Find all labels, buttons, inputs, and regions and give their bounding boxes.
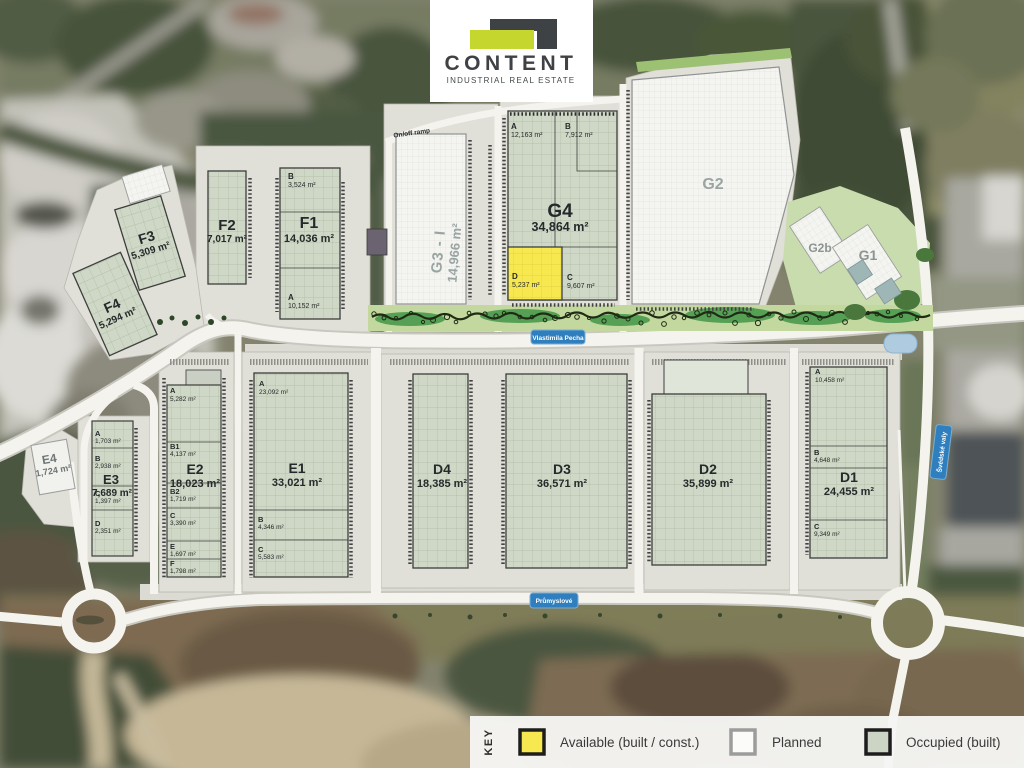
svg-text:18,385 m²: 18,385 m² [417, 478, 467, 490]
svg-text:D1: D1 [840, 469, 858, 485]
svg-text:D4: D4 [433, 461, 451, 477]
svg-text:10,152 m²: 10,152 m² [288, 303, 320, 310]
svg-text:9,349 m²: 9,349 m² [814, 531, 840, 538]
svg-text:36,571 m²: 36,571 m² [537, 478, 587, 490]
svg-text:4,137 m²: 4,137 m² [170, 451, 196, 458]
svg-text:C: C [567, 273, 573, 282]
svg-text:1,397 m²: 1,397 m² [95, 498, 121, 505]
svg-text:7,017 m²: 7,017 m² [207, 234, 248, 245]
svg-text:E3: E3 [103, 472, 119, 487]
svg-text:C: C [258, 545, 264, 554]
svg-text:33,021 m²: 33,021 m² [272, 477, 322, 489]
svg-text:A: A [95, 429, 101, 438]
svg-text:Průmyslové: Průmyslové [536, 597, 573, 605]
svg-text:A: A [259, 379, 265, 388]
svg-text:F: F [170, 559, 175, 568]
svg-text:2,351 m²: 2,351 m² [95, 528, 121, 535]
svg-text:CONTENT: CONTENT [445, 52, 578, 75]
svg-text:Available (built / const.): Available (built / const.) [560, 735, 699, 750]
svg-text:KEY: KEY [483, 728, 495, 755]
svg-text:C: C [95, 489, 101, 498]
svg-text:5,583 m²: 5,583 m² [258, 554, 284, 561]
svg-text:12,163 m²: 12,163 m² [511, 132, 543, 139]
svg-text:24,455 m²: 24,455 m² [824, 486, 874, 498]
svg-text:B: B [565, 122, 571, 131]
svg-text:5,282 m²: 5,282 m² [170, 396, 196, 403]
svg-text:5,237 m²: 5,237 m² [512, 282, 540, 289]
svg-text:G2: G2 [702, 176, 723, 193]
svg-text:B1: B1 [170, 442, 180, 451]
svg-text:4,346 m²: 4,346 m² [258, 524, 284, 531]
svg-text:7,912 m²: 7,912 m² [565, 132, 593, 139]
svg-text:F2: F2 [218, 217, 236, 234]
svg-text:10,458 m²: 10,458 m² [815, 377, 845, 384]
svg-text:D: D [512, 272, 518, 281]
svg-text:B: B [814, 448, 820, 457]
svg-text:A: A [511, 122, 517, 131]
svg-text:G2b: G2b [808, 241, 831, 255]
svg-text:35,899 m²: 35,899 m² [683, 478, 733, 490]
svg-text:G1: G1 [859, 247, 878, 263]
svg-text:1,703 m²: 1,703 m² [95, 438, 121, 445]
svg-text:34,864 m²: 34,864 m² [532, 220, 589, 234]
svg-text:3,524 m²: 3,524 m² [288, 182, 316, 189]
svg-text:E1: E1 [288, 460, 305, 476]
svg-text:C: C [170, 511, 176, 520]
svg-text:A: A [815, 367, 821, 376]
svg-text:Occupied (built): Occupied (built) [906, 735, 1001, 750]
svg-text:Planned: Planned [772, 735, 822, 750]
svg-text:9,607 m²: 9,607 m² [567, 283, 595, 290]
svg-text:D: D [95, 519, 101, 528]
svg-text:D2: D2 [699, 461, 717, 477]
svg-text:A: A [170, 386, 176, 395]
svg-text:23,092 m²: 23,092 m² [259, 389, 289, 396]
svg-text:1,719 m²: 1,719 m² [170, 496, 196, 503]
svg-text:B: B [258, 515, 264, 524]
svg-text:3,390 m²: 3,390 m² [170, 520, 196, 527]
svg-text:A: A [288, 293, 294, 302]
svg-text:C: C [814, 522, 820, 531]
svg-text:E2: E2 [186, 461, 203, 477]
svg-text:4,648 m²: 4,648 m² [814, 457, 840, 464]
svg-text:2,938 m²: 2,938 m² [95, 463, 121, 470]
svg-text:G4: G4 [547, 201, 573, 222]
svg-text:Vlastimila Pecha: Vlastimila Pecha [532, 335, 584, 342]
svg-text:D3: D3 [553, 461, 571, 477]
svg-text:B2: B2 [170, 487, 180, 496]
svg-text:B: B [95, 454, 101, 463]
svg-text:14,036 m²: 14,036 m² [284, 233, 334, 245]
svg-text:1,798 m²: 1,798 m² [170, 568, 196, 575]
svg-text:1,697 m²: 1,697 m² [170, 551, 196, 558]
svg-text:E: E [170, 542, 175, 551]
svg-text:F1: F1 [300, 215, 319, 232]
svg-text:INDUSTRIAL REAL ESTATE: INDUSTRIAL REAL ESTATE [447, 76, 576, 85]
svg-text:B: B [288, 172, 294, 181]
